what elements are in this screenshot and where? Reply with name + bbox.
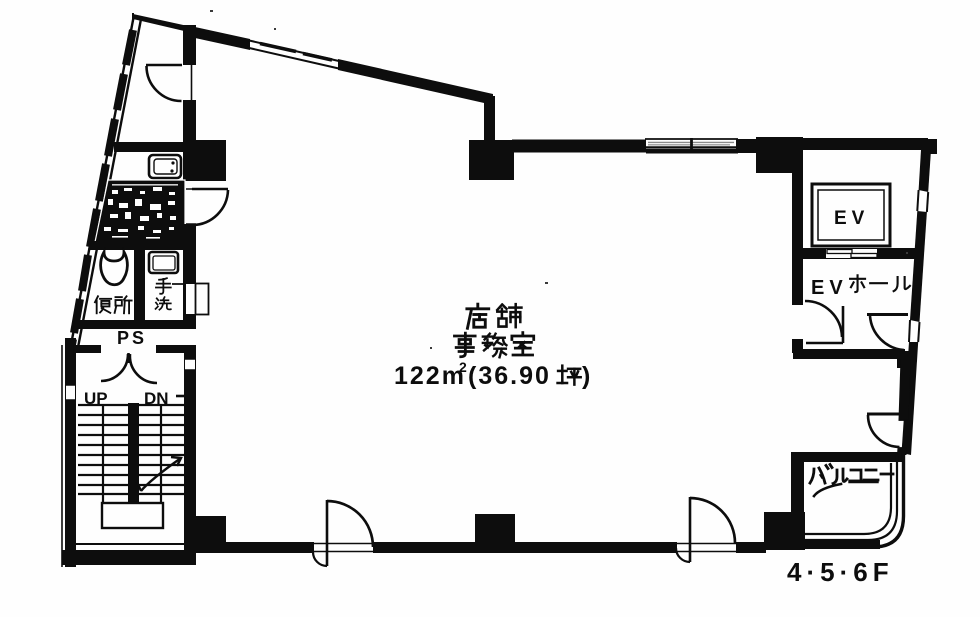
svg-text:): ) <box>582 362 590 390</box>
svg-text:2: 2 <box>459 359 467 375</box>
svg-text:122m: 122m <box>394 362 466 390</box>
svg-text:EV: EV <box>834 208 869 229</box>
svg-text:EV: EV <box>811 277 848 299</box>
svg-text:PS: PS <box>117 328 147 348</box>
svg-text:4·5·6F: 4·5·6F <box>787 557 894 587</box>
svg-text:(36.90: (36.90 <box>468 362 551 390</box>
